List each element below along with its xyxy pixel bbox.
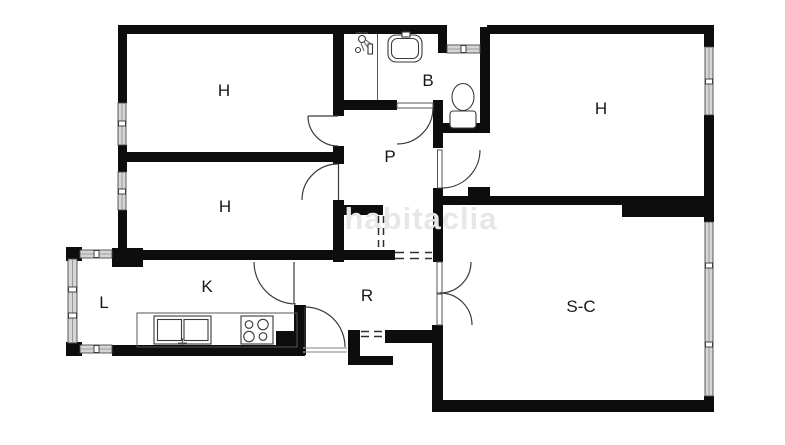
- wall: [333, 146, 344, 164]
- wall: [433, 250, 443, 262]
- window: [705, 47, 713, 115]
- wall: [433, 100, 443, 148]
- kitchen-sink-icon: [154, 316, 211, 345]
- wall: [118, 152, 343, 162]
- wall: [704, 25, 714, 47]
- washbasin-icon: [388, 32, 422, 62]
- stove-icon: [241, 316, 273, 344]
- wall: [622, 196, 714, 217]
- window: [68, 259, 77, 343]
- floor-plan-canvas: habitaclia: [0, 0, 785, 445]
- wall: [385, 330, 433, 343]
- wall: [118, 34, 127, 103]
- room-label-gallery: L: [99, 293, 108, 312]
- wall: [704, 115, 714, 196]
- wall: [276, 331, 297, 355]
- room-label-hallway: P: [384, 147, 395, 166]
- wall: [432, 400, 714, 412]
- wall: [112, 250, 395, 260]
- floor-plan: habitaclia: [0, 0, 785, 445]
- window: [705, 222, 713, 396]
- wall: [333, 100, 397, 110]
- window: [118, 172, 126, 210]
- wall: [468, 187, 490, 197]
- room-label-bathroom: B: [422, 71, 433, 90]
- watermark: habitaclia: [345, 201, 498, 236]
- room-label-entry-hall: R: [361, 286, 373, 305]
- wall: [704, 196, 714, 222]
- window: [118, 103, 126, 145]
- wall: [432, 325, 443, 403]
- room-label-bedroom-top-left: H: [218, 81, 230, 100]
- room-label-kitchen: K: [201, 277, 213, 296]
- wall: [438, 25, 447, 53]
- window: [80, 345, 112, 353]
- room-label-bedroom-right: H: [595, 99, 607, 118]
- window: [447, 45, 480, 53]
- wall: [112, 248, 143, 267]
- wall: [480, 53, 490, 133]
- room-label-bedroom-mid-left: H: [219, 197, 231, 216]
- wall: [348, 356, 393, 365]
- wall: [487, 25, 712, 34]
- window: [80, 250, 112, 258]
- wall: [118, 25, 447, 34]
- room-label-living-dining: S-C: [566, 297, 595, 316]
